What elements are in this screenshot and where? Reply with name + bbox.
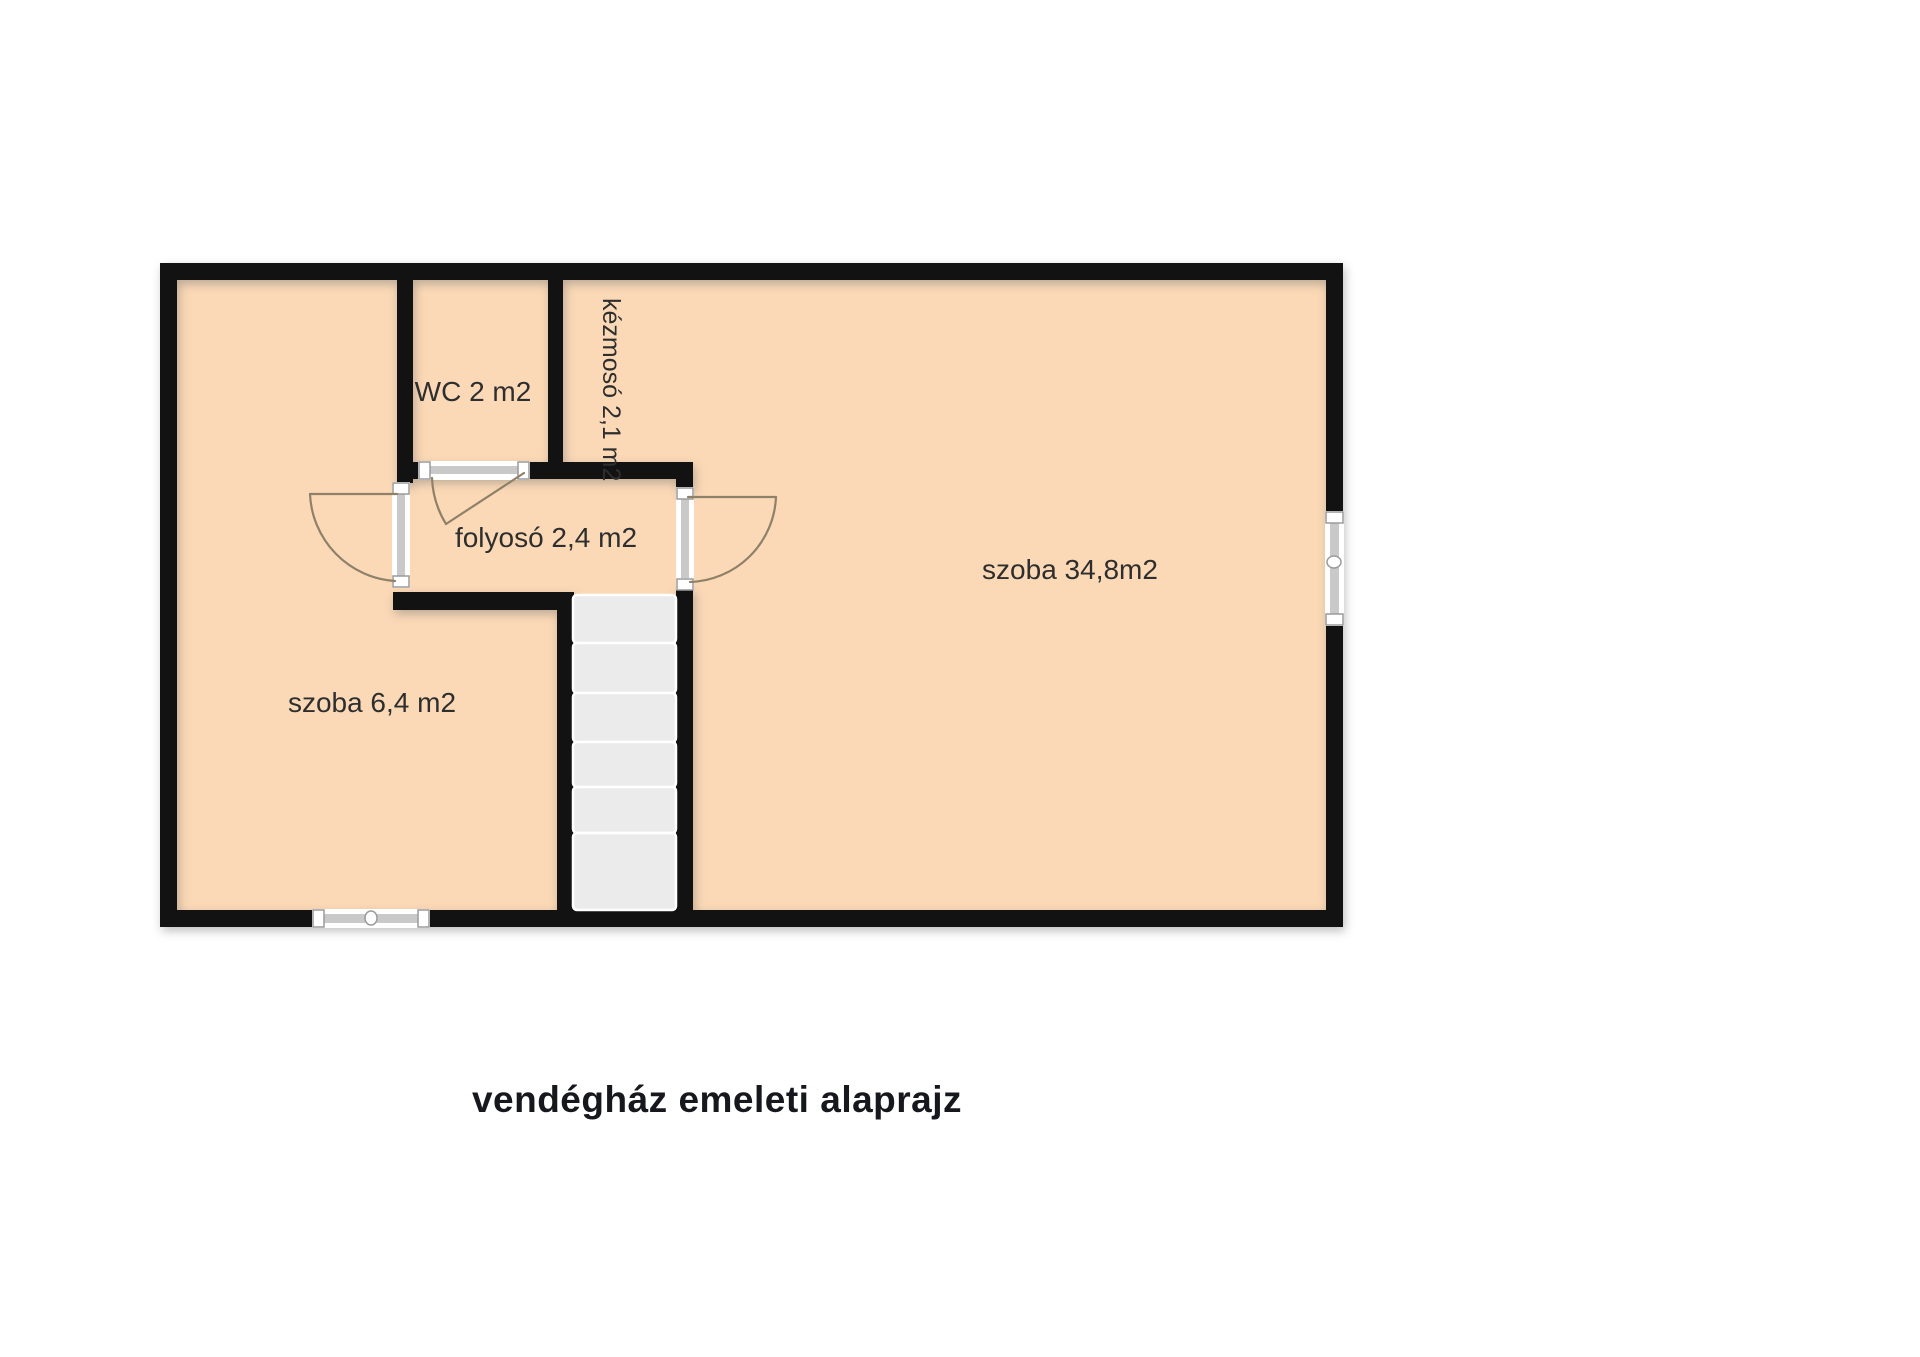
bottom-window	[312, 909, 430, 928]
wc-doorway-cap-left	[419, 462, 430, 479]
room-label-folyoso: folyosó 2,4 m2	[455, 522, 637, 553]
right-window-cap-top	[1326, 512, 1343, 523]
folyoso-right-doorway-frame	[681, 499, 689, 578]
stair-tread	[573, 595, 676, 643]
wall-wc-right	[548, 263, 563, 479]
stair-tread	[573, 643, 676, 693]
right-window	[1325, 511, 1344, 626]
floorplan-title: vendégház emeleti alaprajz	[472, 1079, 962, 1120]
right-window-cap-bottom	[1326, 614, 1343, 625]
wc-doorway-frame	[430, 466, 518, 474]
folyoso-left-doorway-frame	[397, 494, 405, 576]
bottom-window-cap-right	[418, 910, 429, 927]
floor-area	[168, 271, 1335, 919]
room-label-wc: WC 2 m2	[415, 376, 532, 407]
bottom-window-handle	[365, 911, 377, 925]
room-label-szoba-large: szoba 34,8m2	[982, 554, 1158, 585]
stair-tread	[573, 693, 676, 742]
floorplan-page: WC 2 m2 kézmosó 2,1 m2 folyosó 2,4 m2 sz…	[0, 0, 1920, 1357]
bottom-window-cap-left	[313, 910, 324, 927]
room-label-szoba-small: szoba 6,4 m2	[288, 687, 456, 718]
staircase	[573, 595, 676, 910]
wall-outer-top	[160, 263, 1343, 280]
stair-tread	[573, 833, 676, 910]
folyoso-left-doorway	[392, 482, 410, 588]
wc-doorway	[418, 461, 530, 480]
wall-outer-left	[160, 263, 177, 927]
folyoso-right-doorway-cap-bottom	[677, 579, 693, 590]
folyoso-left-doorway-cap-top	[393, 483, 409, 494]
wall-folyoso-bottom	[393, 592, 574, 610]
wall-wc-left	[397, 263, 413, 483]
right-window-handle	[1327, 556, 1341, 568]
wall-corner-folyoso-right	[676, 462, 693, 489]
wall-szoba-large-left	[676, 588, 693, 927]
floorplan-drawing: WC 2 m2 kézmosó 2,1 m2 folyosó 2,4 m2 sz…	[0, 0, 1920, 1357]
room-label-kezmoso: kézmosó 2,1 m2	[597, 298, 625, 481]
wall-stairs-left	[557, 592, 574, 927]
stair-tread	[573, 787, 676, 833]
staircase-treads	[573, 595, 676, 910]
stair-tread	[573, 742, 676, 787]
folyoso-right-doorway	[676, 487, 694, 590]
